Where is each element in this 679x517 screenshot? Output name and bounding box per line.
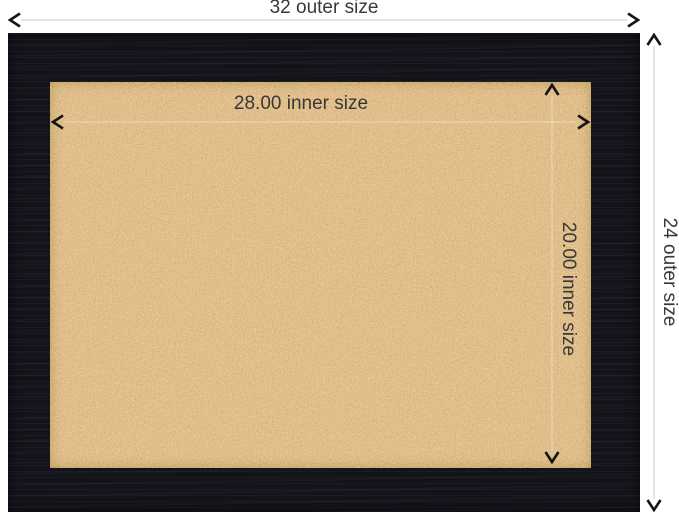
arrowhead-down-icon [648, 500, 661, 510]
inner-height-dimension: 20.00 inner size [50, 82, 591, 468]
cork-texture [50, 82, 591, 468]
arrowhead-left-icon [53, 116, 63, 129]
arrowhead-right-icon [628, 14, 638, 27]
inner-height-label: 20.00 inner size [556, 214, 578, 364]
inner-height-arrow [544, 83, 560, 464]
outer-height-label: 24 outer size [657, 202, 679, 342]
inner-width-arrow [50, 114, 591, 130]
arrowhead-up-icon [648, 35, 661, 45]
arrowhead-left-icon [10, 14, 20, 27]
board-frame: 28.00 inner size 20.00 inner size [8, 33, 640, 512]
product-dimension-image: 32 outer size 24 outer size [0, 0, 679, 517]
cork-surface: 28.00 inner size 20.00 inner size [50, 82, 591, 468]
inner-width-dimension: 28.00 inner size [50, 82, 591, 130]
outer-height-dimension: 24 outer size [646, 33, 679, 512]
outer-width-dimension: 32 outer size [8, 0, 640, 28]
inner-width-label: 28.00 inner size [50, 94, 552, 114]
outer-width-arrow [8, 12, 640, 28]
arrowhead-right-icon [578, 116, 588, 129]
arrowhead-down-icon [546, 452, 559, 462]
cork-texture-fine [50, 82, 591, 468]
